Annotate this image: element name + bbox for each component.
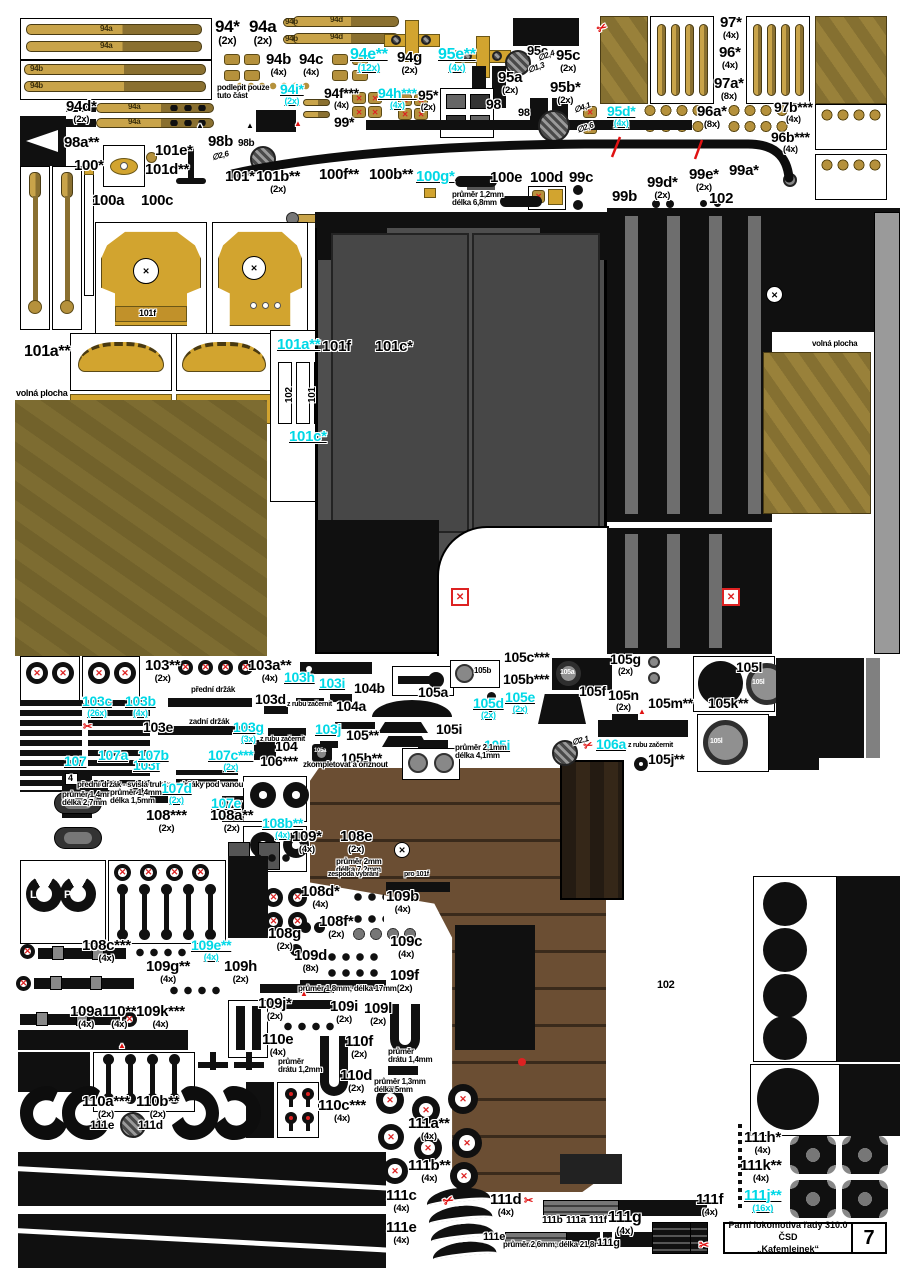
part-shape [20, 944, 35, 959]
part-shape [168, 986, 226, 995]
part-label: 96*(4x) [719, 45, 741, 71]
part-label: pro 101f [404, 871, 429, 878]
part-shape [820, 158, 882, 172]
part-label: 100e [490, 170, 522, 185]
part-label: 101a** [24, 344, 70, 360]
part-label: průměr 1,2mm délka 6,8mm [452, 191, 504, 207]
part-shape [781, 24, 790, 96]
part-label: 101c* [375, 339, 413, 354]
part-label: 111b**(4x) [408, 1158, 450, 1184]
part-shape [815, 16, 887, 104]
part-label: 107b [138, 748, 169, 762]
part-label: 111d [138, 1119, 163, 1131]
part-shape [766, 286, 783, 303]
part-label: 108f*(2x) [319, 914, 353, 940]
part-shape [224, 54, 240, 65]
part-label: 94a [100, 42, 112, 50]
part-label: 111f [589, 1216, 607, 1226]
part-label: průměr 1,4mm délka 1,5mm [110, 789, 162, 805]
part-label: 109a(4x) [70, 1004, 102, 1030]
part-label: 97b***(4x) [774, 100, 813, 124]
part-label: průměr 1,4mm délka 2,7mm [62, 791, 114, 807]
part-label: 102 [657, 980, 674, 991]
part-shape [28, 300, 42, 314]
part-shape [450, 1162, 478, 1190]
part-label: 94a [128, 118, 140, 126]
part-shape [26, 41, 202, 52]
part-label: 105** [346, 728, 379, 742]
part-label: 110f(2x) [345, 1034, 373, 1060]
part-label: 102 [285, 387, 295, 403]
part-shape [598, 720, 688, 737]
part-label: 107c***(2x) [208, 748, 253, 772]
part-label: 105g(2x) [610, 652, 641, 676]
part-label: 111d(4x) [490, 1192, 521, 1218]
part-label: 109i(2x) [330, 999, 358, 1025]
part-label: 95b*(2x) [550, 80, 581, 106]
part-label: 105l [710, 738, 722, 745]
part-label: 99b [612, 189, 637, 204]
part-label: 98b [238, 139, 254, 149]
part-label: 97a*(8x) [714, 76, 744, 102]
part-shape [303, 111, 330, 118]
part-label: 104b [354, 681, 385, 695]
part-shape [874, 212, 900, 654]
title-box: Parní lokomotiva řady 310.0 ČSD „Kafemle… [723, 1222, 887, 1254]
part-shape [317, 520, 439, 652]
part-label: 105a [560, 669, 574, 676]
part-label: 109*(4x) [292, 829, 322, 855]
part-label: 94d*(2x) [66, 99, 97, 125]
part-label: 108a**(2x) [210, 808, 253, 834]
part-label: 94*(2x) [215, 18, 240, 47]
sheet-title: Parní lokomotiva řady 310.0 ČSD „Kafemle… [725, 1224, 851, 1252]
part-shape [142, 890, 147, 934]
part-label: 102 [709, 191, 733, 206]
part-shape [26, 662, 48, 684]
part-label: 109g**(4x) [146, 959, 190, 985]
part-label: 103**(2x) [145, 658, 180, 684]
part-shape [424, 188, 436, 198]
part-label: 95c(2x) [556, 48, 580, 74]
part-shape [667, 534, 680, 648]
part-shape [24, 64, 206, 75]
part-shape [783, 173, 797, 187]
part-shape [548, 189, 563, 205]
part-shape [388, 1066, 418, 1075]
part-label: z rubu začernit [628, 742, 673, 749]
part-label: 94a [100, 25, 112, 33]
part-label: průměr 2,6mm; délka 21,8mm [503, 1241, 608, 1249]
part-shape [283, 782, 309, 808]
part-label: 111a [566, 1216, 586, 1226]
part-shape [29, 172, 41, 198]
part-label: 103d [255, 692, 286, 706]
part-shape [790, 1180, 836, 1218]
part-shape [372, 700, 452, 717]
part-label: 94b [285, 35, 298, 43]
part-label: 100g* [416, 169, 455, 184]
part-shape [166, 864, 183, 881]
part-shape [408, 753, 428, 773]
part-label: 105e(2x) [505, 690, 535, 714]
part-label: 94g(2x) [397, 50, 422, 76]
part-label: 94b [30, 65, 43, 73]
part-label: 111e [483, 1232, 505, 1243]
part-label: 100a [92, 193, 124, 208]
part-shape [26, 24, 202, 35]
part-shape [391, 35, 401, 45]
part-label: z rubu začernit [260, 736, 305, 743]
part-shape [398, 676, 432, 684]
part-shape [842, 1136, 888, 1174]
part-shape [667, 216, 680, 514]
part-shape [625, 216, 638, 514]
part-label: 101c* [289, 429, 327, 444]
part-label: 105l [736, 660, 762, 674]
part-shape [842, 1180, 888, 1218]
part-label: 100d [530, 170, 563, 185]
part-shape [451, 588, 469, 606]
part-label: 111j**(16x) [744, 1188, 781, 1214]
part-label: 99a* [729, 163, 759, 178]
part-label: 109l(2x) [364, 1001, 392, 1027]
part-shape [573, 200, 583, 210]
part-shape [837, 876, 900, 1062]
part-shape [352, 892, 384, 902]
part-shape [36, 1012, 48, 1026]
part-label: ▲ [196, 122, 204, 130]
part-label: 99d*(2x) [647, 175, 678, 201]
part-shape [264, 888, 283, 907]
part-label: 94d [330, 16, 343, 24]
part-label: 94c(4x) [299, 52, 323, 78]
part-label: 105f [579, 684, 606, 698]
part-label: ✂ [582, 740, 594, 754]
part-shape [648, 672, 660, 684]
part-label: 100f** [319, 167, 359, 182]
part-label: 101a** [277, 337, 320, 352]
part-shape [90, 976, 102, 990]
part-shape [228, 856, 268, 938]
part-label: 109b(4x) [386, 889, 419, 915]
part-shape [192, 864, 209, 881]
part-shape [763, 928, 807, 972]
part-label: 103h [284, 670, 315, 684]
paper-model-sheet: Parní lokomotiva řady 310.0 ČSD „Kafemle… [0, 0, 901, 1275]
part-shape [331, 233, 469, 533]
part-shape [685, 24, 694, 96]
part-label: 94d [330, 33, 343, 41]
part-shape [52, 662, 74, 684]
part-label: volná plocha [812, 340, 857, 348]
part-shape [244, 70, 260, 81]
part-label: 111e(4x) [386, 1220, 417, 1246]
part-shape [666, 200, 674, 208]
part-label: 111a**(4x) [408, 1116, 450, 1142]
part-shape [326, 968, 384, 978]
part-label: podlepit pouze tuto část [217, 84, 269, 100]
part-shape [500, 196, 542, 207]
part-label: 107a [98, 748, 128, 762]
part-shape [452, 1128, 482, 1158]
part-shape [753, 24, 762, 96]
part-shape [198, 660, 213, 675]
part-shape [33, 196, 38, 302]
part-label: 94b [30, 82, 43, 90]
part-label: průměr 1,3mm délka 5mm [374, 1078, 426, 1094]
part-label: zespoda vybrání [328, 871, 378, 878]
part-label: 101b**(2x) [256, 169, 300, 195]
part-shape [625, 534, 638, 648]
part-shape [246, 1052, 252, 1070]
part-shape [64, 832, 92, 844]
part-label: průměr 2,1mm délka 4,1mm [455, 744, 507, 760]
part-label: 101f [139, 309, 156, 318]
part-shape [84, 172, 94, 296]
part-shape [18, 1052, 90, 1092]
part-shape [236, 1006, 245, 1050]
part-label: 105n(2x) [608, 688, 639, 712]
part-shape [446, 94, 466, 109]
part-label: P [64, 890, 71, 901]
part-shape [657, 24, 666, 96]
part-shape [168, 105, 212, 111]
part-label: ✂ [524, 1196, 533, 1207]
part-label: 109k***(4x) [136, 1004, 185, 1030]
part-shape [427, 1203, 492, 1224]
part-shape [262, 302, 269, 309]
part-shape [61, 172, 73, 198]
part-shape [757, 1068, 819, 1130]
part-shape [763, 882, 807, 926]
part-shape [224, 70, 240, 81]
part-shape [134, 948, 192, 957]
part-shape [699, 24, 708, 96]
part-shape [790, 1136, 836, 1174]
part-shape [820, 108, 882, 122]
part-label: 103i [319, 676, 345, 690]
part-label: 105j** [648, 752, 684, 766]
part-shape [218, 660, 233, 675]
part-shape [722, 588, 740, 606]
part-shape [120, 162, 128, 170]
part-shape [634, 757, 648, 771]
part-shape [24, 81, 206, 92]
part-shape [394, 842, 410, 858]
part-shape [60, 300, 74, 314]
part-label: 101f [322, 339, 351, 354]
part-label: 94e**(12x) [350, 47, 388, 75]
part-shape [326, 952, 384, 962]
part-label: 94a [128, 103, 140, 111]
part-label: 95e**(4x) [438, 47, 476, 75]
part-label: 101d** [145, 162, 189, 177]
part-label: 105b*** [503, 672, 549, 686]
part-shape [492, 51, 502, 61]
part-label: 94i*(2x) [280, 82, 304, 106]
part-label: 110a***(2x) [82, 1094, 130, 1120]
part-label: 101e* [155, 143, 193, 158]
part-shape [250, 782, 276, 808]
spare-gold-sheet [15, 400, 267, 656]
part-label: 103e [143, 720, 173, 734]
part-label: 105a [418, 685, 448, 699]
part-label: ▲ [638, 708, 646, 716]
part-label: 108e(2x) [340, 829, 372, 855]
part-label: zadní držák [189, 718, 229, 726]
part-shape [293, 16, 399, 27]
part-label: 95*(2x) [418, 88, 438, 112]
part-label: ▲ [300, 990, 308, 998]
part-shape [300, 922, 311, 933]
part-shape [455, 664, 474, 683]
part-shape [366, 120, 692, 130]
part-label: 103b(4x) [125, 694, 156, 718]
part-label: 110c***(4x) [318, 1098, 366, 1124]
part-label: 111c(4x) [386, 1188, 417, 1214]
part-shape [352, 914, 384, 924]
part-label: 109c(4x) [390, 934, 422, 960]
part-shape [268, 728, 306, 736]
part-shape [378, 1124, 404, 1150]
part-label: 111h*(4x) [744, 1130, 781, 1156]
part-label: 110e(4x) [262, 1032, 293, 1058]
part-shape [767, 24, 776, 96]
part-label: 94b [285, 18, 298, 26]
sheet-title-line1: Parní lokomotiva řady 310.0 ČSD [725, 1220, 851, 1243]
dark-wood-part [560, 760, 624, 900]
part-label: 111f(4x) [696, 1192, 723, 1218]
part-shape [840, 1064, 900, 1136]
sheet-page-number: 7 [851, 1224, 885, 1252]
part-label: volná plocha [16, 389, 67, 398]
part-label: 111g [597, 1238, 620, 1249]
part-shape [114, 864, 131, 881]
part-label: 98b [208, 134, 233, 149]
part-shape [178, 660, 193, 675]
part-shape [18, 1030, 188, 1050]
part-shape [448, 1084, 478, 1114]
part-label: L [30, 890, 36, 901]
part-label: průměr drátu 1,4mm [388, 1048, 432, 1064]
part-label: průměr 1,8mm; délka 17mm [298, 985, 397, 993]
part-label: 106*** [260, 754, 298, 768]
part-label: 105l [752, 679, 764, 686]
part-shape [671, 24, 680, 96]
part-shape [34, 978, 134, 989]
part-label: 99* [334, 115, 354, 129]
part-shape [274, 302, 281, 309]
part-label: 105k** [708, 696, 748, 710]
part-label: průměr drátu 1,2mm [278, 1058, 322, 1074]
part-shape [88, 662, 110, 684]
part-label: 111b [542, 1216, 563, 1226]
part-label: 109d(8x) [294, 948, 327, 974]
part-label: 105m** [648, 696, 693, 710]
part-shape [573, 185, 583, 195]
part-label: 109h(2x) [224, 959, 257, 985]
part-shape [332, 54, 348, 65]
part-label: 107 [64, 754, 86, 768]
part-shape [763, 1016, 807, 1060]
part-label: 94f***(4x) [324, 86, 359, 110]
part-label: 111g(4x) [608, 1210, 642, 1238]
part-label: 100* [74, 158, 104, 173]
part-label: ✂ [699, 1239, 709, 1251]
part-label: 109j*(2x) [258, 996, 292, 1022]
part-label: 104a [336, 699, 366, 713]
part-shape [763, 974, 807, 1018]
part-label: 106a [596, 737, 626, 751]
part-label: 105d(2x) [473, 696, 504, 720]
part-shape [285, 1088, 297, 1100]
part-label: 99c [569, 170, 593, 185]
part-shape [332, 70, 348, 81]
part-label: 94b(4x) [266, 52, 291, 78]
part-shape [256, 110, 296, 132]
part-label: 98a** [64, 135, 99, 150]
part-shape [210, 1052, 216, 1070]
part-shape [244, 54, 260, 65]
part-label: 94h***(4x) [378, 86, 417, 110]
part-shape [16, 976, 31, 991]
part-label: 95d*(4x) [607, 104, 635, 128]
part-shape [538, 110, 570, 142]
part-label: 103c(26x) [82, 694, 112, 718]
part-label: 105a [314, 748, 326, 754]
part-shape [264, 706, 288, 714]
part-shape [513, 18, 579, 46]
sheet-title-line2: „Kafemlejnek“ [725, 1244, 851, 1256]
part-label: přední držák [191, 686, 235, 694]
part-shape [518, 1058, 526, 1066]
part-label: 111k**(4x) [740, 1158, 782, 1184]
part-shape [455, 925, 535, 1050]
part-label: 105c*** [504, 650, 549, 664]
part-shape [866, 658, 880, 758]
part-shape [612, 714, 638, 720]
part-shape [648, 656, 660, 668]
part-label: 110d(2x) [340, 1068, 372, 1094]
part-shape [421, 35, 431, 45]
part-label: 98 [518, 108, 530, 119]
part-label: ∅2,6 [211, 150, 229, 162]
spare-gold-area [763, 352, 871, 514]
part-shape [250, 302, 257, 309]
part-label: 95a(2x) [498, 70, 522, 96]
part-label: 4 [68, 774, 73, 783]
part-label: 100c [141, 193, 173, 208]
part-label: 108***(2x) [146, 808, 187, 834]
part-label: ▲ [294, 120, 302, 128]
part-shape [472, 233, 600, 533]
part-shape [242, 256, 266, 280]
part-shape [434, 753, 454, 773]
part-label: 105b [474, 667, 491, 675]
part-shape [168, 120, 212, 126]
part-label: 110**(4x) [102, 1004, 136, 1030]
part-shape [176, 178, 206, 184]
part-label: 96a*(8x) [697, 104, 727, 130]
part-shape [186, 890, 191, 934]
part-label: 100b** [369, 167, 413, 182]
part-label: 107d(2x) [161, 781, 192, 805]
part-shape [140, 864, 157, 881]
part-label: z rubu začernit [287, 701, 332, 708]
part-shape [246, 1082, 274, 1138]
part-label: 94a(2x) [249, 18, 276, 47]
